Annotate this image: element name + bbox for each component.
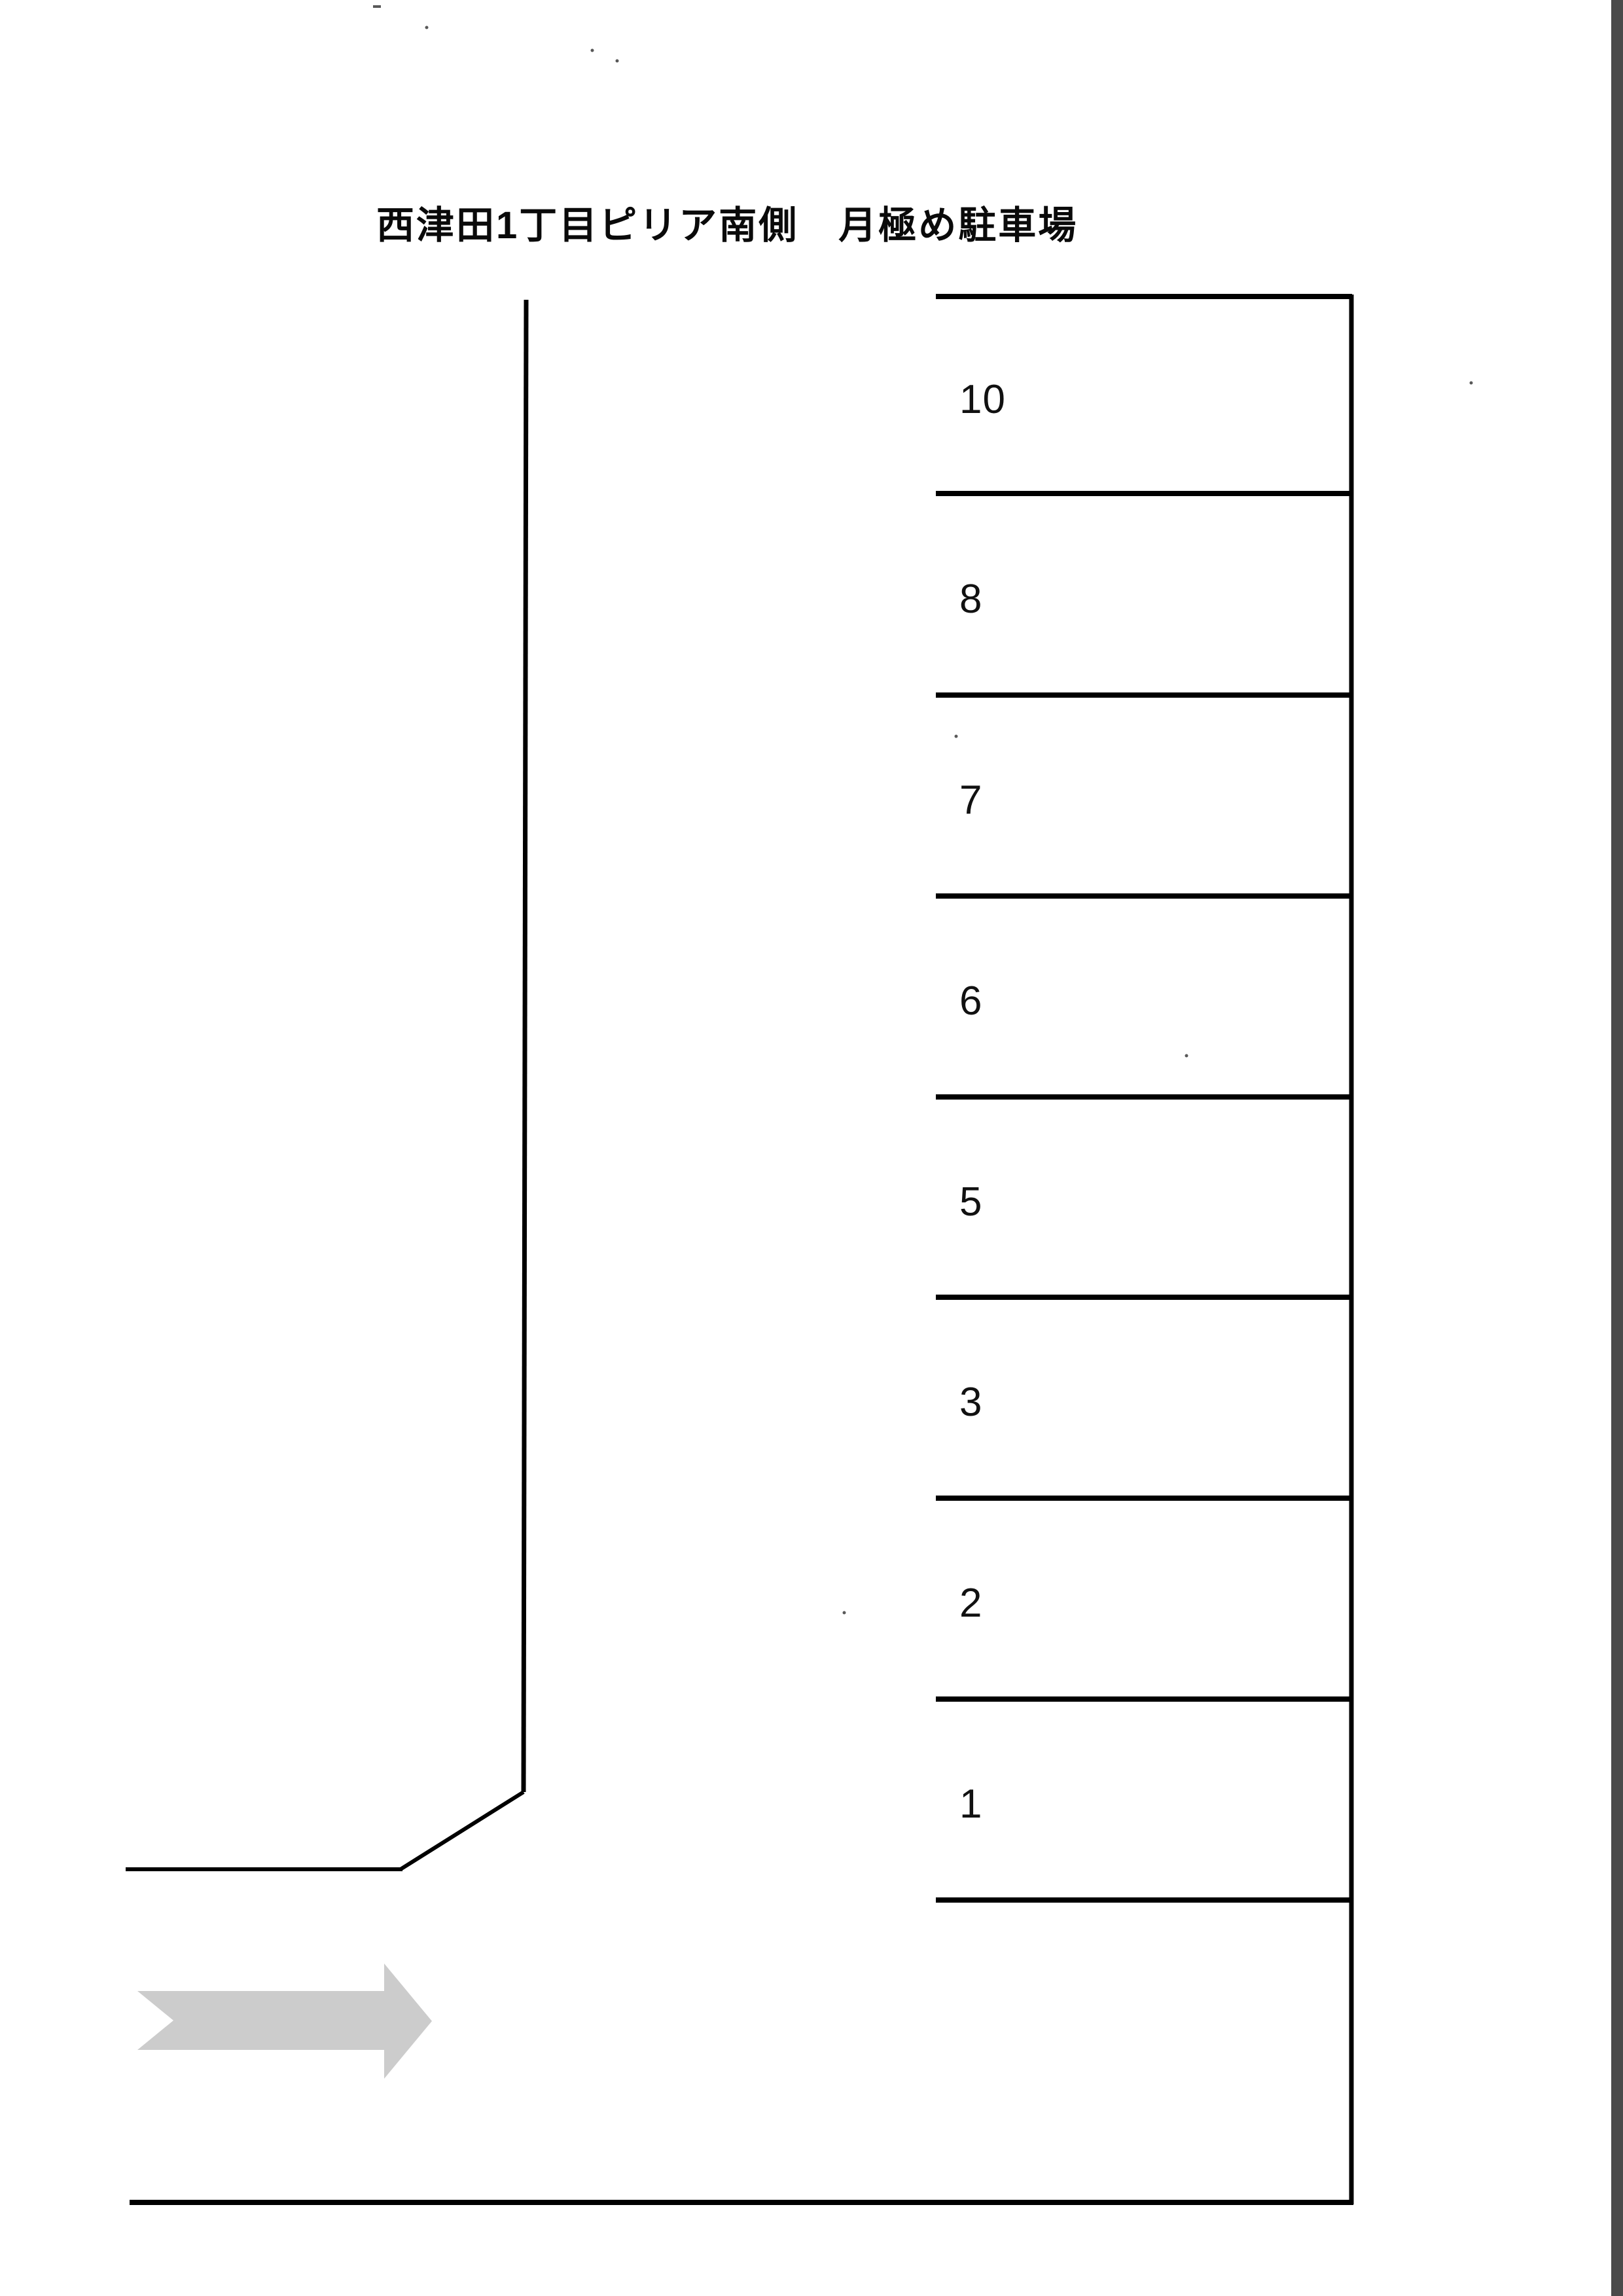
parking-space-2: 2 — [936, 1498, 1352, 1699]
parking-diagram-drawing — [0, 0, 1623, 2296]
scanned-parking-map-page: 西津田1丁目ピリア南側 月極め駐車場 — [0, 0, 1623, 2296]
scan-speck — [843, 1611, 846, 1615]
scan-speck — [591, 49, 594, 52]
parking-space-10: 10 — [936, 296, 1352, 493]
road-edge-diagonal-line — [401, 1792, 524, 1869]
scan-speck — [1470, 382, 1473, 385]
parking-space-label: 2 — [959, 1580, 982, 1626]
parking-space-label: 10 — [959, 376, 1006, 423]
scan-speck — [373, 5, 381, 8]
parking-space-label: 6 — [959, 978, 982, 1024]
parking-space-6: 6 — [936, 896, 1352, 1097]
scan-speck — [616, 60, 619, 63]
scan-speck — [425, 26, 429, 29]
parking-space-label: 3 — [959, 1379, 982, 1426]
parking-space-label: 1 — [959, 1781, 982, 1827]
scan-artifact-bar — [1611, 0, 1623, 2296]
road-edge-vertical-line — [524, 300, 526, 1792]
parking-space-8: 8 — [936, 493, 1352, 695]
parking-space-1: 1 — [936, 1699, 1352, 1900]
parking-space-7: 7 — [936, 695, 1352, 896]
parking-space-label: 5 — [959, 1179, 982, 1225]
parking-space-3: 3 — [936, 1297, 1352, 1498]
right-arrow-icon — [137, 1964, 432, 2079]
parking-space-label: 7 — [959, 777, 982, 823]
parking-space-label: 8 — [959, 576, 982, 622]
parking-space-5: 5 — [936, 1097, 1352, 1297]
